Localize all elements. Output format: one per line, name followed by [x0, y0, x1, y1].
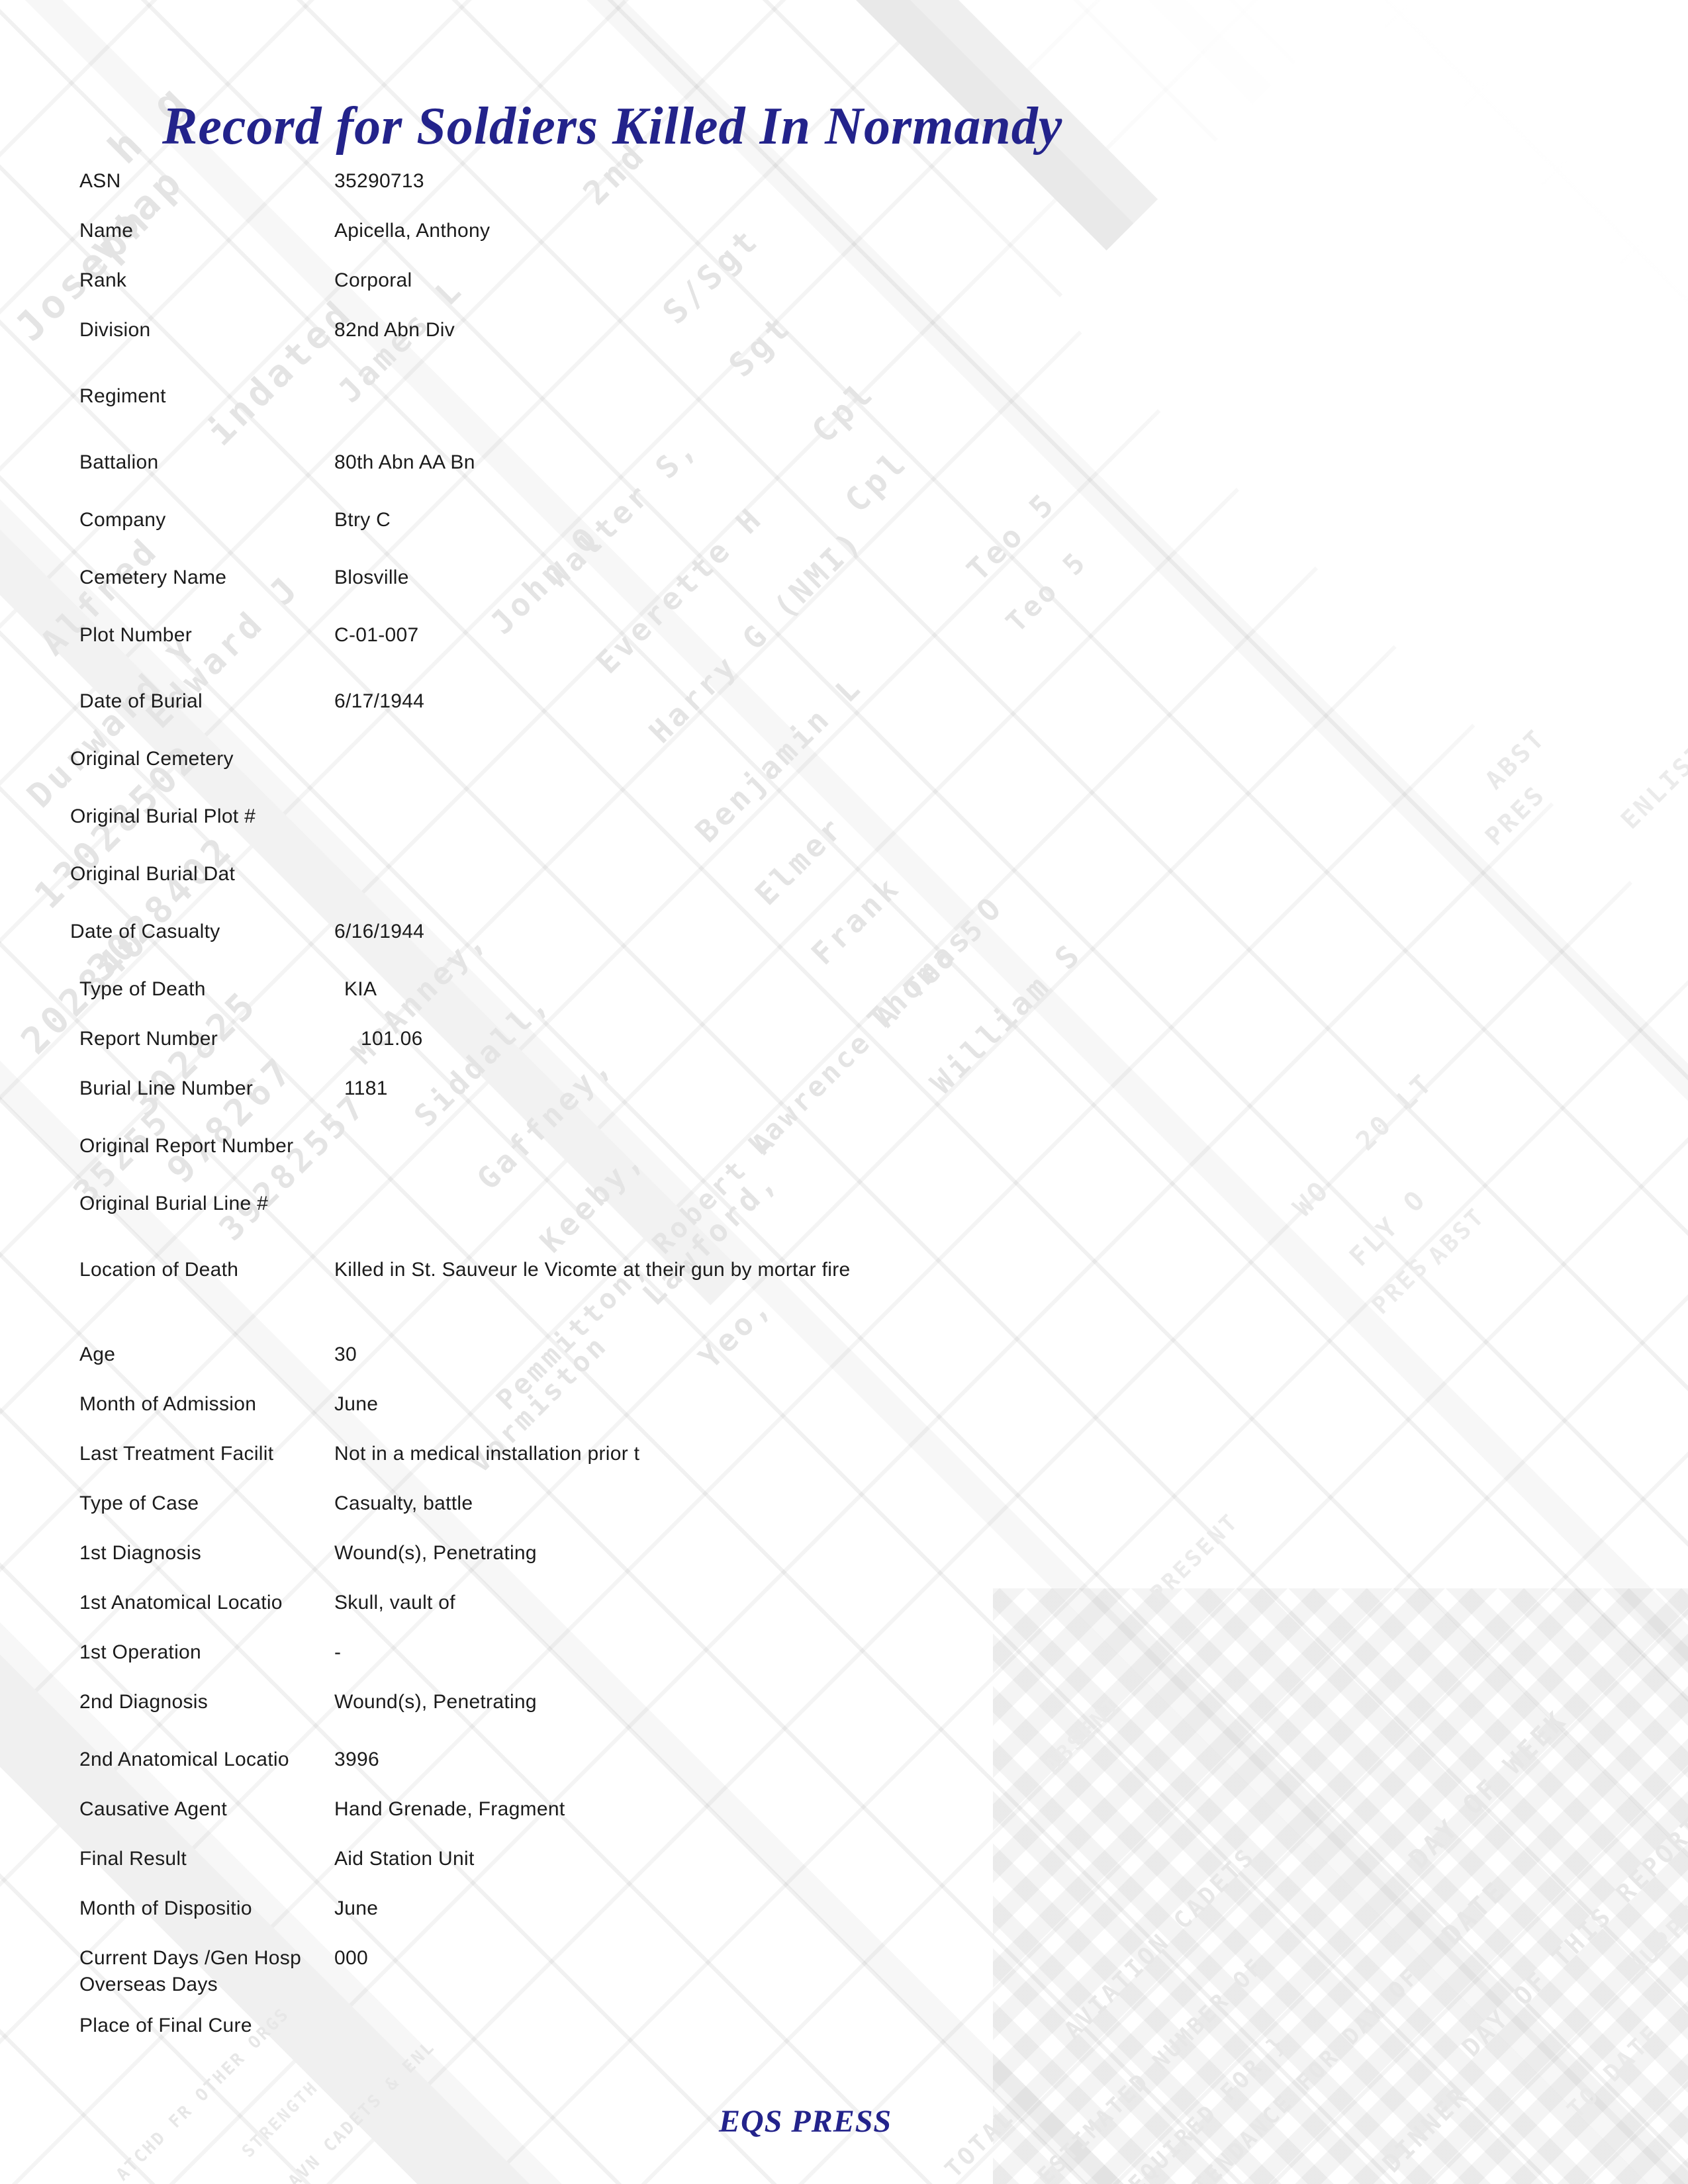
watermark-text: TOTAL — [940, 2103, 1020, 2183]
field-row: Month of AdmissionJune — [79, 1392, 1622, 1417]
field-row: Original Burial Dat — [70, 862, 1622, 887]
field-label: 1st Anatomical Locatio — [79, 1590, 334, 1615]
field-row: Original Report Number — [79, 1134, 1622, 1159]
publisher-imprint: EQS PRESS — [719, 2103, 892, 2140]
field-label: Original Report Number — [79, 1134, 334, 1159]
field-row: 1st Anatomical LocatioSkull, vault of — [79, 1590, 1622, 1615]
field-row: Location of DeathKilled in St. Sauveur l… — [79, 1257, 1622, 1283]
field-row: ASN35290713 — [79, 169, 1622, 194]
field-label: Overseas Days — [79, 1972, 334, 1997]
field-label: Original Burial Line # — [79, 1191, 334, 1216]
field-value: 000 — [334, 1946, 368, 1971]
field-value: 3996 — [334, 1747, 379, 1772]
field-row: 1st Operation- — [79, 1640, 1622, 1665]
field-label: Location of Death — [79, 1257, 334, 1283]
field-label: Type of Case — [79, 1491, 334, 1516]
field-value: Skull, vault of — [334, 1590, 455, 1615]
field-row: Report Number101.06 — [79, 1026, 1622, 1052]
field-label: 1st Diagnosis — [79, 1541, 334, 1566]
document-page: h gJosephvoapindated2ndS/SgtSgtCplCplTeo… — [0, 0, 1688, 2184]
field-value: 80th Abn AA Bn — [334, 450, 475, 475]
field-row: Original Burial Line # — [79, 1191, 1622, 1216]
field-label: Month of Admission — [79, 1392, 334, 1417]
field-value: 1181 — [334, 1076, 388, 1101]
field-label: Type of Death — [79, 977, 334, 1002]
field-row: Type of CaseCasualty, battle — [79, 1491, 1622, 1516]
field-row: Cemetery NameBlosville — [79, 565, 1622, 590]
field-value: KIA — [334, 977, 377, 1002]
field-row: Date of Casualty6/16/1944 — [70, 919, 1622, 944]
field-row: Original Burial Plot # — [70, 804, 1622, 829]
field-value: Killed in St. Sauveur le Vicomte at thei… — [334, 1257, 850, 1283]
field-row: Last Treatment FacilitNot in a medical i… — [79, 1441, 1622, 1467]
field-row: Division82nd Abn Div — [79, 318, 1622, 343]
field-label: Regiment — [79, 384, 334, 409]
field-value: 35290713 — [334, 169, 424, 194]
field-value: Aid Station Unit — [334, 1846, 475, 1872]
field-row: Causative AgentHand Grenade, Fragment — [79, 1797, 1622, 1822]
field-row: Overseas Days — [79, 1972, 1622, 1997]
field-row: Date of Burial6/17/1944 — [79, 689, 1622, 714]
field-value: June — [334, 1392, 378, 1417]
page-title: Record for Soldiers Killed In Normandy — [162, 97, 1062, 157]
field-label: Cemetery Name — [79, 565, 334, 590]
field-value: Corporal — [334, 268, 412, 293]
field-row: Final ResultAid Station Unit — [79, 1846, 1622, 1872]
field-value: Btry C — [334, 508, 391, 533]
field-row: Burial Line Number1181 — [79, 1076, 1622, 1101]
field-label: Month of Dispositio — [79, 1896, 334, 1921]
field-label: 1st Operation — [79, 1640, 334, 1665]
field-label: Burial Line Number — [79, 1076, 334, 1101]
field-label: Final Result — [79, 1846, 334, 1872]
field-value: Blosville — [334, 565, 409, 590]
field-row: 2nd Anatomical Locatio3996 — [79, 1747, 1622, 1772]
field-label: Original Cemetery — [70, 747, 334, 772]
field-label: Original Burial Plot # — [70, 804, 334, 829]
field-label: Date of Burial — [79, 689, 334, 714]
field-value: Hand Grenade, Fragment — [334, 1797, 565, 1822]
field-row: Plot NumberC-01-007 — [79, 623, 1622, 648]
field-row: Battalion80th Abn AA Bn — [79, 450, 1622, 475]
field-row: NameApicella, Anthony — [79, 218, 1622, 244]
field-row: Place of Final Cure — [79, 2013, 1622, 2038]
field-label: 2nd Diagnosis — [79, 1690, 334, 1715]
field-label: Causative Agent — [79, 1797, 334, 1822]
field-value: Not in a medical installation prior t — [334, 1441, 639, 1467]
field-row: Month of DispositioJune — [79, 1896, 1622, 1921]
field-value: 101.06 — [334, 1026, 423, 1052]
field-row: Type of DeathKIA — [79, 977, 1622, 1002]
watermark-text: AVN CADETS & ENL — [285, 2037, 440, 2184]
watermark-text: STRENGTH — [238, 2077, 322, 2161]
field-row: 2nd DiagnosisWound(s), Penetrating — [79, 1690, 1622, 1715]
field-value: Apicella, Anthony — [334, 218, 490, 244]
field-value: Casualty, battle — [334, 1491, 473, 1516]
field-row: CompanyBtry C — [79, 508, 1622, 533]
field-label: ASN — [79, 169, 334, 194]
field-label: Plot Number — [79, 623, 334, 648]
field-label: Current Days /Gen Hosp — [79, 1946, 334, 1971]
field-value: - — [334, 1640, 341, 1665]
watermark-text: DINNER — [1377, 2081, 1475, 2179]
field-value: Wound(s), Penetrating — [334, 1690, 537, 1715]
field-label: Name — [79, 218, 334, 244]
field-row: Regiment — [79, 384, 1622, 409]
field-row: Age30 — [79, 1342, 1622, 1367]
field-label: Company — [79, 508, 334, 533]
watermark-text: ENLISTED MEN — [1615, 660, 1688, 835]
field-label: Division — [79, 318, 334, 343]
field-label: Rank — [79, 268, 334, 293]
field-label: Last Treatment Facilit — [79, 1441, 334, 1467]
field-label: Original Burial Dat — [70, 862, 334, 887]
field-label: Date of Casualty — [70, 919, 334, 944]
field-label: 2nd Anatomical Locatio — [79, 1747, 334, 1772]
field-value: 6/16/1944 — [334, 919, 424, 944]
field-value: June — [334, 1896, 378, 1921]
field-label: Report Number — [79, 1026, 334, 1052]
field-row: Original Cemetery — [70, 747, 1622, 772]
field-value: Wound(s), Penetrating — [334, 1541, 537, 1566]
field-value: 6/17/1944 — [334, 689, 424, 714]
record-fields: ASN35290713NameApicella, AnthonyRankCorp… — [79, 169, 1622, 2038]
field-value: 30 — [334, 1342, 357, 1367]
field-label: Age — [79, 1342, 334, 1367]
field-value: 82nd Abn Div — [334, 318, 455, 343]
field-value: C-01-007 — [334, 623, 418, 648]
field-row: Current Days /Gen Hosp000 — [79, 1946, 1622, 1971]
field-label: Battalion — [79, 450, 334, 475]
field-label: Place of Final Cure — [79, 2013, 334, 2038]
field-row: 1st DiagnosisWound(s), Penetrating — [79, 1541, 1622, 1566]
field-row: RankCorporal — [79, 268, 1622, 293]
